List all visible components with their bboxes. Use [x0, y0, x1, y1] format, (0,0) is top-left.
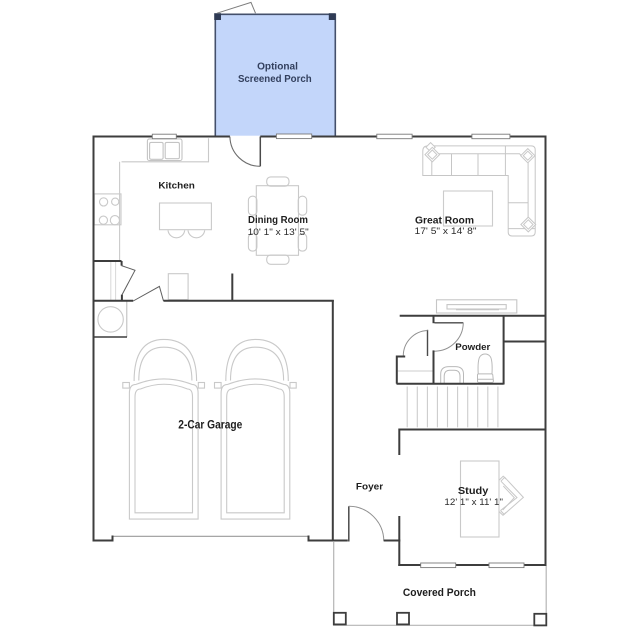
- svg-text:10' 1" x 13' 5": 10' 1" x 13' 5": [248, 227, 309, 238]
- svg-text:Kitchen: Kitchen: [158, 181, 195, 192]
- svg-text:Foyer: Foyer: [356, 482, 383, 493]
- svg-text:2-Car Garage: 2-Car Garage: [178, 419, 242, 432]
- svg-text:17' 5" x 14' 8": 17' 5" x 14' 8": [415, 226, 477, 237]
- svg-text:Powder: Powder: [455, 342, 490, 353]
- svg-text:12' 1" x 11' 1": 12' 1" x 11' 1": [444, 497, 503, 508]
- svg-text:Covered Porch: Covered Porch: [403, 587, 476, 599]
- svg-text:Dining Room: Dining Room: [248, 215, 308, 226]
- svg-text:Study: Study: [458, 486, 489, 497]
- svg-text:Optional: Optional: [257, 61, 298, 72]
- svg-text:Great Room: Great Room: [415, 216, 474, 227]
- svg-text:Screened Porch: Screened Porch: [238, 74, 312, 85]
